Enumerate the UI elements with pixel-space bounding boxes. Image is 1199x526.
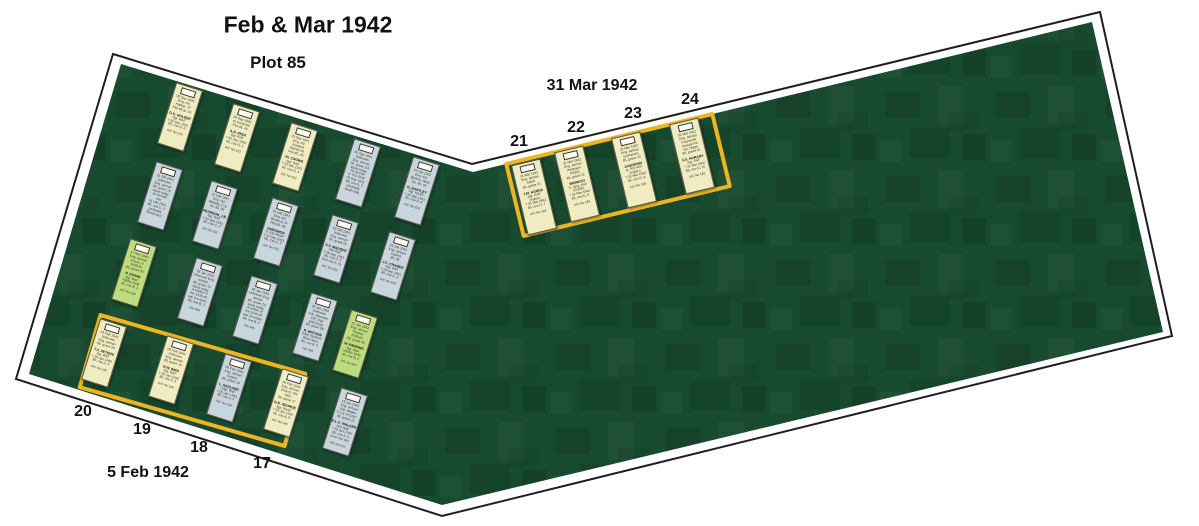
date-caption-31-mar: 31 Mar 1942 — [547, 77, 638, 95]
grave-number-19: 19 — [133, 421, 151, 439]
grave-number-22: 22 — [567, 119, 585, 137]
plot-number-label: Plot 85 — [250, 53, 306, 73]
grave-number-21: 21 — [510, 133, 528, 151]
grave-number-17: 17 — [253, 455, 271, 473]
grave-number-18: 18 — [190, 439, 208, 457]
date-caption-5-feb: 5 Feb 1942 — [107, 464, 189, 482]
grave-number-24: 24 — [681, 91, 699, 109]
grave-number-23: 23 — [624, 105, 642, 123]
grave-number-20: 20 — [74, 403, 92, 421]
page-title: Feb & Mar 1942 — [224, 12, 393, 39]
plot-diagram: 05 Sep 1940Eng. mil.Halifax, JTPlot 85 g… — [0, 0, 1199, 526]
